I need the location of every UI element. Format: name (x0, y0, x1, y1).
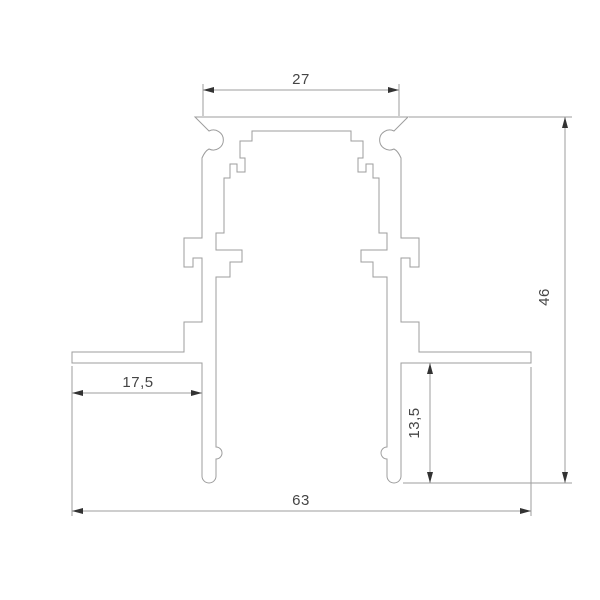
arrowhead-left (72, 390, 83, 396)
technical-drawing-page: 27 46 17,5 13,5 (0, 0, 600, 600)
dimension-label: 63 (292, 492, 310, 509)
arrowhead-up (427, 363, 433, 374)
dimension-label: 46 (536, 288, 553, 306)
dimension-height: 46 (403, 117, 572, 483)
dimension-recess-depth: 13,5 (406, 363, 433, 483)
arrowhead-right (191, 390, 202, 396)
arrowhead-up (562, 117, 568, 128)
arrowhead-right (520, 508, 531, 514)
arrowhead-left (203, 87, 214, 93)
dimension-flange-left-width: 17,5 (72, 374, 202, 396)
arrowhead-right (388, 87, 399, 93)
profile-cross-section-drawing: 27 46 17,5 13,5 (0, 0, 600, 600)
dimension-label: 17,5 (122, 374, 153, 391)
dimension-label: 27 (292, 71, 310, 88)
arrowhead-left (72, 508, 83, 514)
dimension-top-width: 27 (203, 71, 399, 116)
arrowhead-down (427, 472, 433, 483)
dimension-label: 13,5 (406, 407, 423, 438)
arrowhead-down (562, 472, 568, 483)
profile-outline (72, 117, 531, 483)
